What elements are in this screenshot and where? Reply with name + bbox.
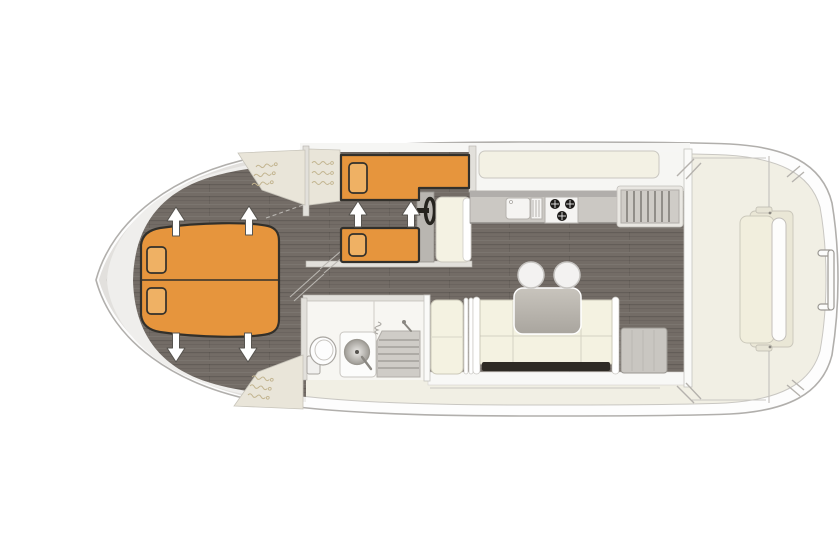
salon-table [514, 288, 581, 334]
galley-counter-edge [470, 191, 620, 197]
stool [554, 262, 580, 288]
cabin-window-band [479, 151, 659, 178]
boat-floor-plan-canvas [0, 0, 840, 560]
bathroom-top-wall [303, 295, 430, 301]
side-steps-rungs [627, 191, 669, 222]
side-steps [621, 190, 679, 223]
bench-hinge-dot [769, 346, 772, 349]
boat-floor-plan [0, 0, 840, 560]
helm-station [417, 192, 471, 262]
bed-pillow [147, 247, 166, 273]
bench-backrest-roll [772, 218, 786, 341]
bed-pillow [349, 163, 367, 193]
toilet-icon [310, 337, 336, 365]
wardrobe-top-right [309, 149, 340, 205]
sofa-armrest [473, 297, 480, 374]
sink-faucet-dial [510, 201, 513, 204]
aft-bulkhead [684, 149, 692, 387]
bed-pillow [147, 288, 166, 314]
galley [470, 186, 683, 227]
stool [518, 262, 544, 288]
sofa-divider-bar [469, 298, 473, 374]
bench-hinge-dot [769, 212, 772, 215]
bathroom-right-wall [424, 295, 430, 381]
side-table [621, 328, 667, 373]
sofa-base [482, 362, 610, 371]
aft-bench-seat [740, 216, 774, 343]
bed-pillow [349, 234, 366, 256]
basin-drain [355, 350, 359, 354]
sofa-armrest [612, 297, 619, 374]
sofa-divider-bar [464, 298, 468, 374]
sofa-seat-cushions [480, 336, 612, 364]
